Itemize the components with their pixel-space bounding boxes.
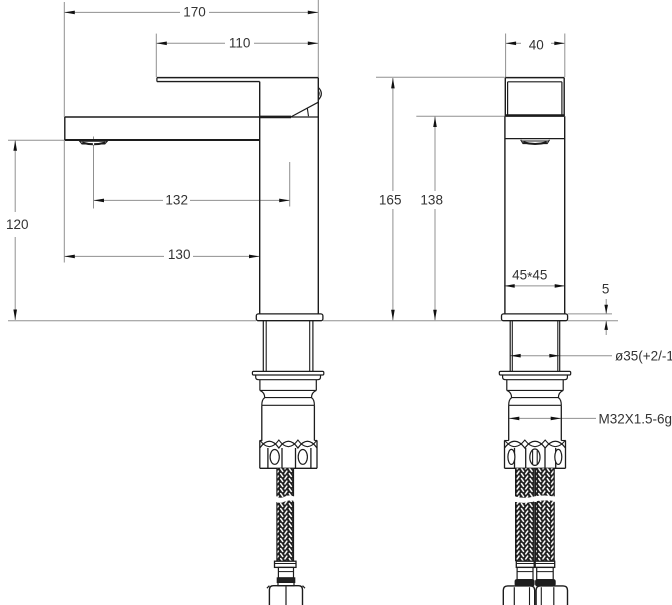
svg-text:132: 132 [165,193,188,208]
svg-text:130: 130 [168,247,191,262]
svg-text:40: 40 [529,37,544,52]
svg-text:ø35(+2/-1): ø35(+2/-1) [615,348,672,363]
svg-text:5: 5 [602,282,610,297]
svg-text:45*45: 45*45 [512,268,547,285]
svg-text:165: 165 [379,192,402,207]
svg-text:110: 110 [229,36,251,51]
svg-text:120: 120 [6,217,29,232]
svg-text:138: 138 [420,192,443,207]
svg-text:170: 170 [183,5,206,20]
svg-text:M32X1.5-6g: M32X1.5-6g [599,411,672,426]
